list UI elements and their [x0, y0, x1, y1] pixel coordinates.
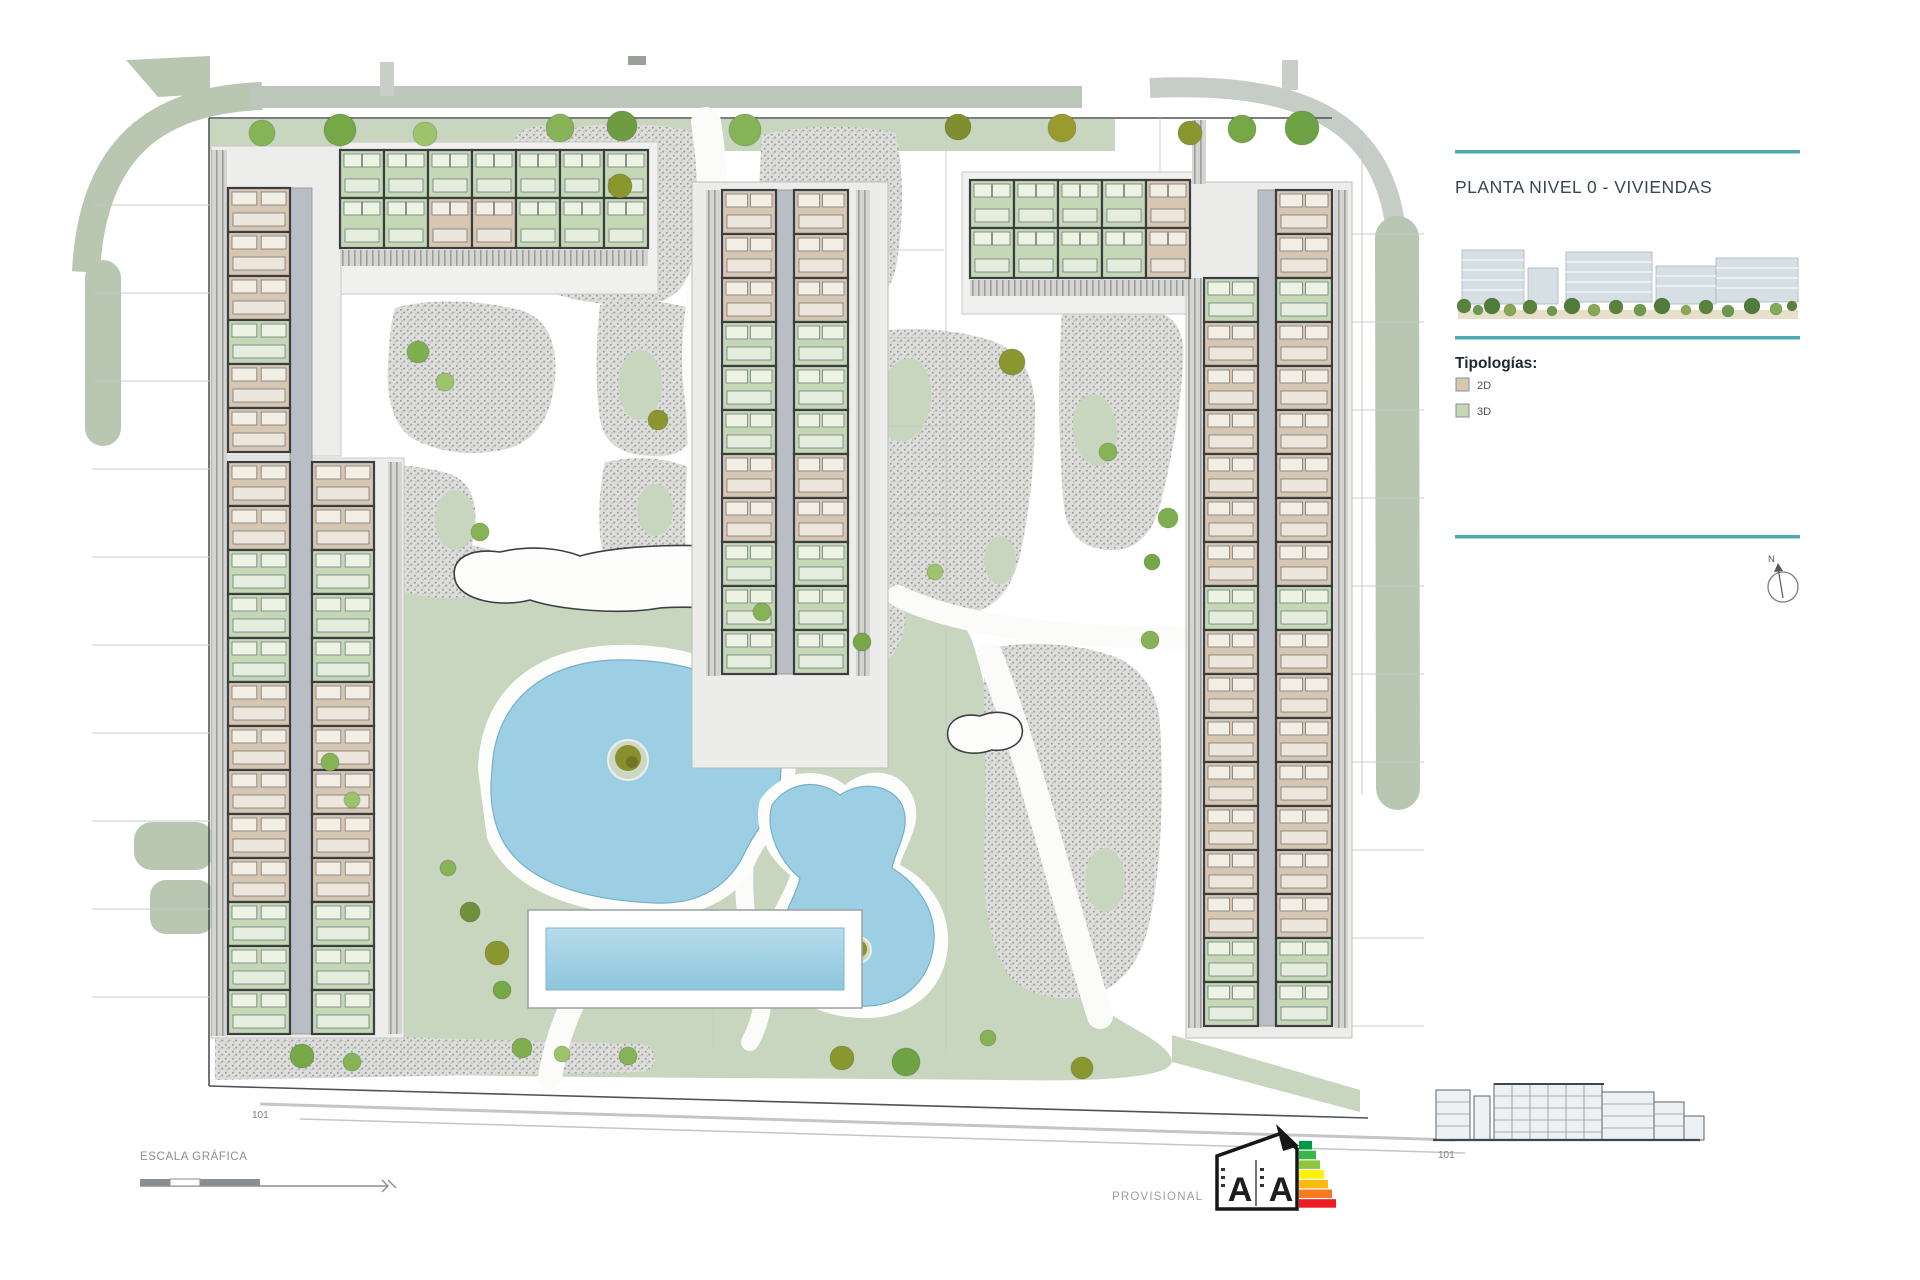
title-block: PLANTA NIVEL 0 - VIVIENDAS: [1455, 150, 1800, 602]
north-arrow-icon: N: [1768, 554, 1798, 602]
accent-rule-top: [1455, 150, 1800, 154]
site-plan-sheet: 101 ESCALA GRÁFICA PROVISIONAL A A: [0, 0, 1920, 1280]
legend-item-2d: 2D: [1456, 378, 1491, 392]
accent-rule-middle: [1455, 336, 1800, 340]
energy-bar: [1299, 1199, 1336, 1208]
elevation-ref-label: 101: [1438, 1150, 1455, 1161]
energy-bar: [1299, 1160, 1320, 1169]
energy-bar: [1299, 1170, 1324, 1179]
energy-bar: [1299, 1180, 1328, 1189]
legend-title: Tipologías:: [1455, 355, 1537, 372]
energy-letter-1: A: [1228, 1171, 1253, 1209]
scale-bar-label: ESCALA GRÁFICA: [140, 1150, 247, 1163]
elevation-drawing: 101: [1433, 1084, 1704, 1161]
lap-pool: [528, 910, 862, 1008]
project-rendering-thumbnail: [1457, 250, 1798, 319]
accent-rule-bottom: [1455, 535, 1800, 539]
provisional-label: PROVISIONAL: [1112, 1191, 1203, 1203]
energy-bar: [1299, 1190, 1332, 1199]
site-plan-drawing: 101 ESCALA GRÁFICA PROVISIONAL A A: [0, 0, 1920, 1280]
scale-bar: ESCALA GRÁFICA: [140, 1150, 396, 1192]
energy-bar: [1299, 1141, 1312, 1150]
energy-bar: [1299, 1151, 1316, 1160]
legend-label-3d: 3D: [1477, 406, 1491, 418]
energy-letter-2: A: [1269, 1171, 1294, 1209]
north-label: N: [1768, 554, 1775, 565]
legend-swatch-2d: [1456, 378, 1469, 391]
plan-ref-label: 101: [252, 1110, 269, 1121]
legend-label-2d: 2D: [1477, 380, 1491, 392]
legend-item-3d: 3D: [1456, 404, 1491, 418]
sheet-title: PLANTA NIVEL 0 - VIVIENDAS: [1455, 177, 1712, 197]
legend-swatch-3d: [1456, 404, 1469, 417]
